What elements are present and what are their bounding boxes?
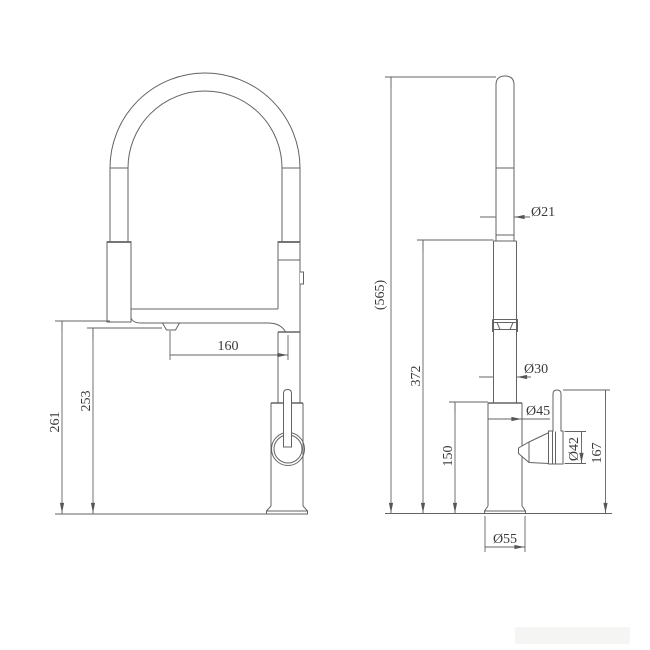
dim-hose-height-label: 372 xyxy=(409,366,424,387)
handle-lever-side xyxy=(553,390,561,432)
hose-tube-left xyxy=(110,168,128,242)
handle-cone-joint xyxy=(519,433,550,464)
base-flare-side xyxy=(485,506,526,514)
base-flare-front xyxy=(267,506,308,514)
dim-spout-height-label: 253 xyxy=(79,391,94,412)
dimension-labels: 261 253 160 (565) 372 150 Ø21 Ø30 Ø45 Ø4… xyxy=(48,205,605,547)
wand-division-line xyxy=(496,168,514,235)
diverter-button xyxy=(300,272,304,284)
aerator-front xyxy=(163,323,180,330)
spout-sleeve-front xyxy=(278,242,300,332)
spring-arch-outer xyxy=(110,73,300,168)
spray-head-front xyxy=(107,242,131,322)
dim-253-lines xyxy=(87,328,162,514)
dim-handle-diameter-label: Ø42 xyxy=(567,437,582,461)
dim-body-diameter-label: Ø45 xyxy=(526,404,550,419)
spout-arm-bottom xyxy=(131,318,285,332)
handle-lever-front xyxy=(284,390,292,448)
dim-base-diameter-label: Ø55 xyxy=(493,532,517,547)
spring-arch-inner xyxy=(128,91,282,168)
faucet-technical-drawing: 261 253 160 (565) 372 150 Ø21 Ø30 Ø45 Ø4… xyxy=(0,0,650,650)
dim-261-lines xyxy=(55,321,110,514)
dim-body-height-label: 150 xyxy=(441,446,456,467)
dim-handle-height-label: 167 xyxy=(590,443,605,464)
handle-hub-side xyxy=(549,431,564,464)
dim-spout-reach-label: 160 xyxy=(218,339,239,354)
dimension-lines xyxy=(55,77,610,552)
dim-overall-height-label: 261 xyxy=(48,412,63,433)
dim-wand-diameter-label: Ø21 xyxy=(531,205,555,220)
aerator-collar-side xyxy=(493,320,518,333)
dim-total-height-label: (565) xyxy=(373,280,388,311)
dim-pipe-diameter-label: Ø30 xyxy=(524,362,548,377)
spray-wand-side xyxy=(496,76,514,241)
technical-drawing-page: 261 253 160 (565) 372 150 Ø21 Ø30 Ø45 Ø4… xyxy=(0,0,650,650)
hose-tube-right xyxy=(282,168,300,242)
body-side xyxy=(488,403,522,506)
